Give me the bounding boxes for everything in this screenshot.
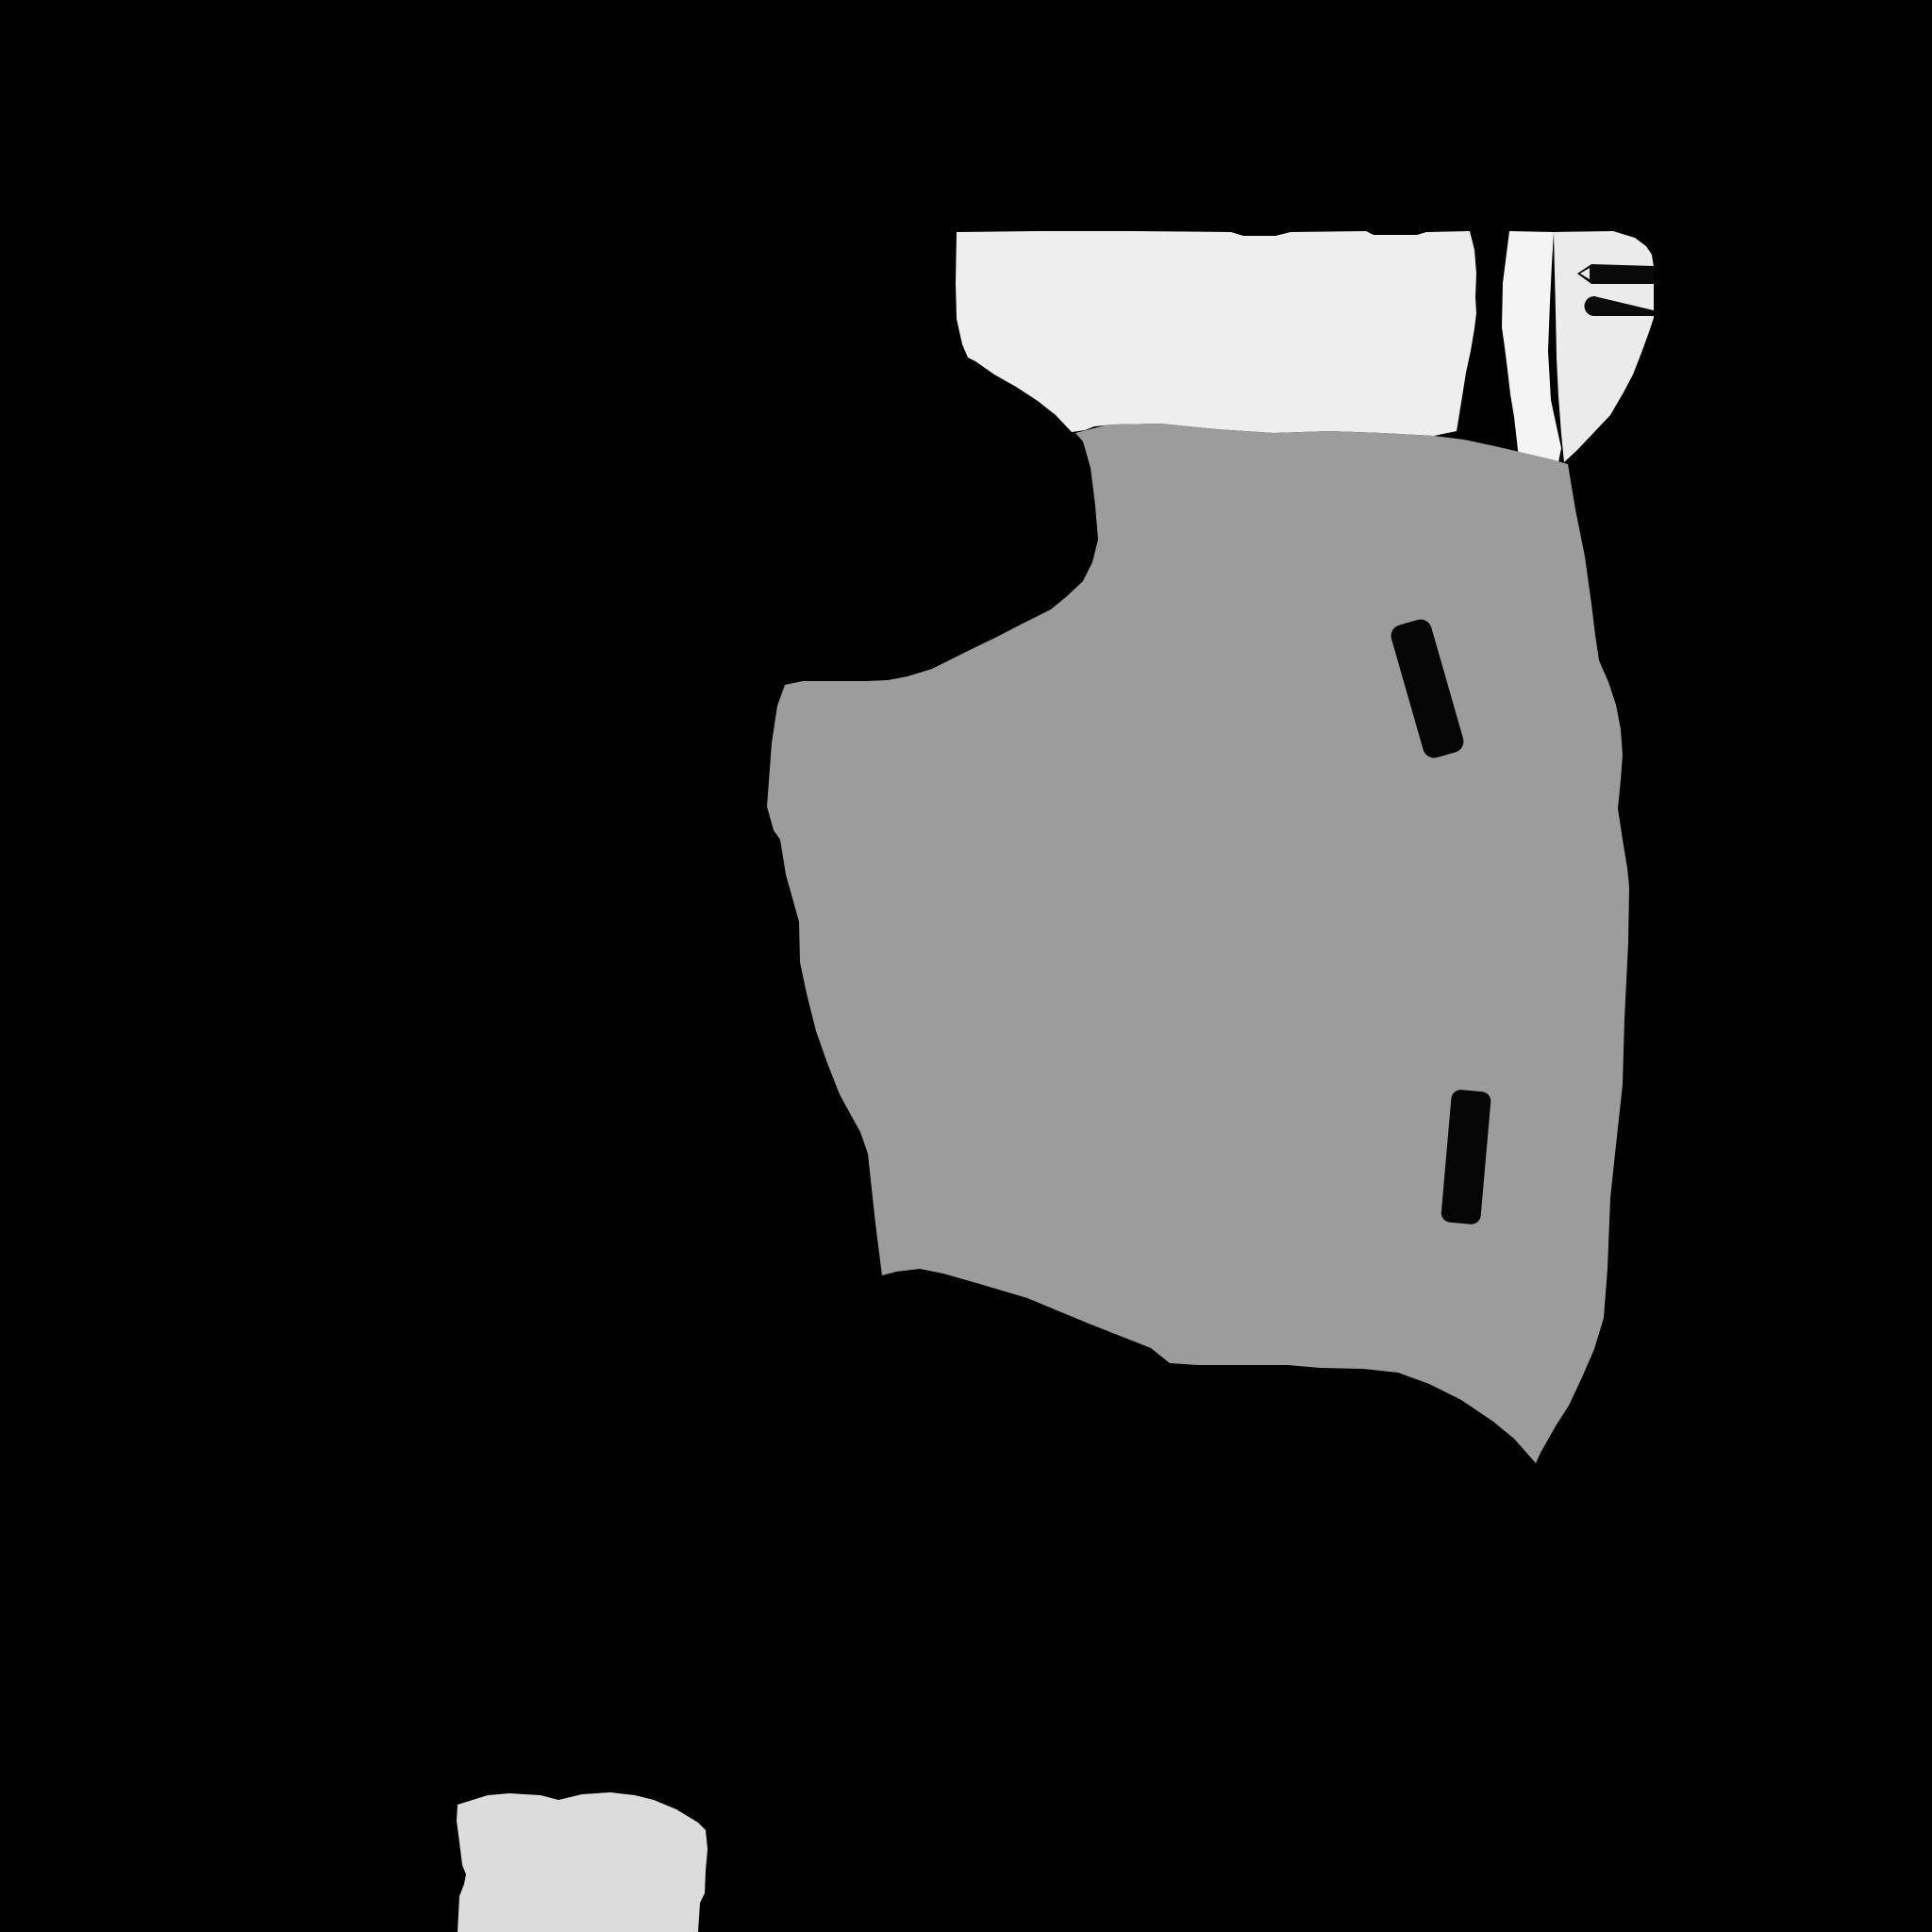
image-canvas	[0, 0, 1932, 1932]
mask-canvas	[0, 0, 1932, 1932]
bottom-light-shape	[457, 1792, 708, 1932]
